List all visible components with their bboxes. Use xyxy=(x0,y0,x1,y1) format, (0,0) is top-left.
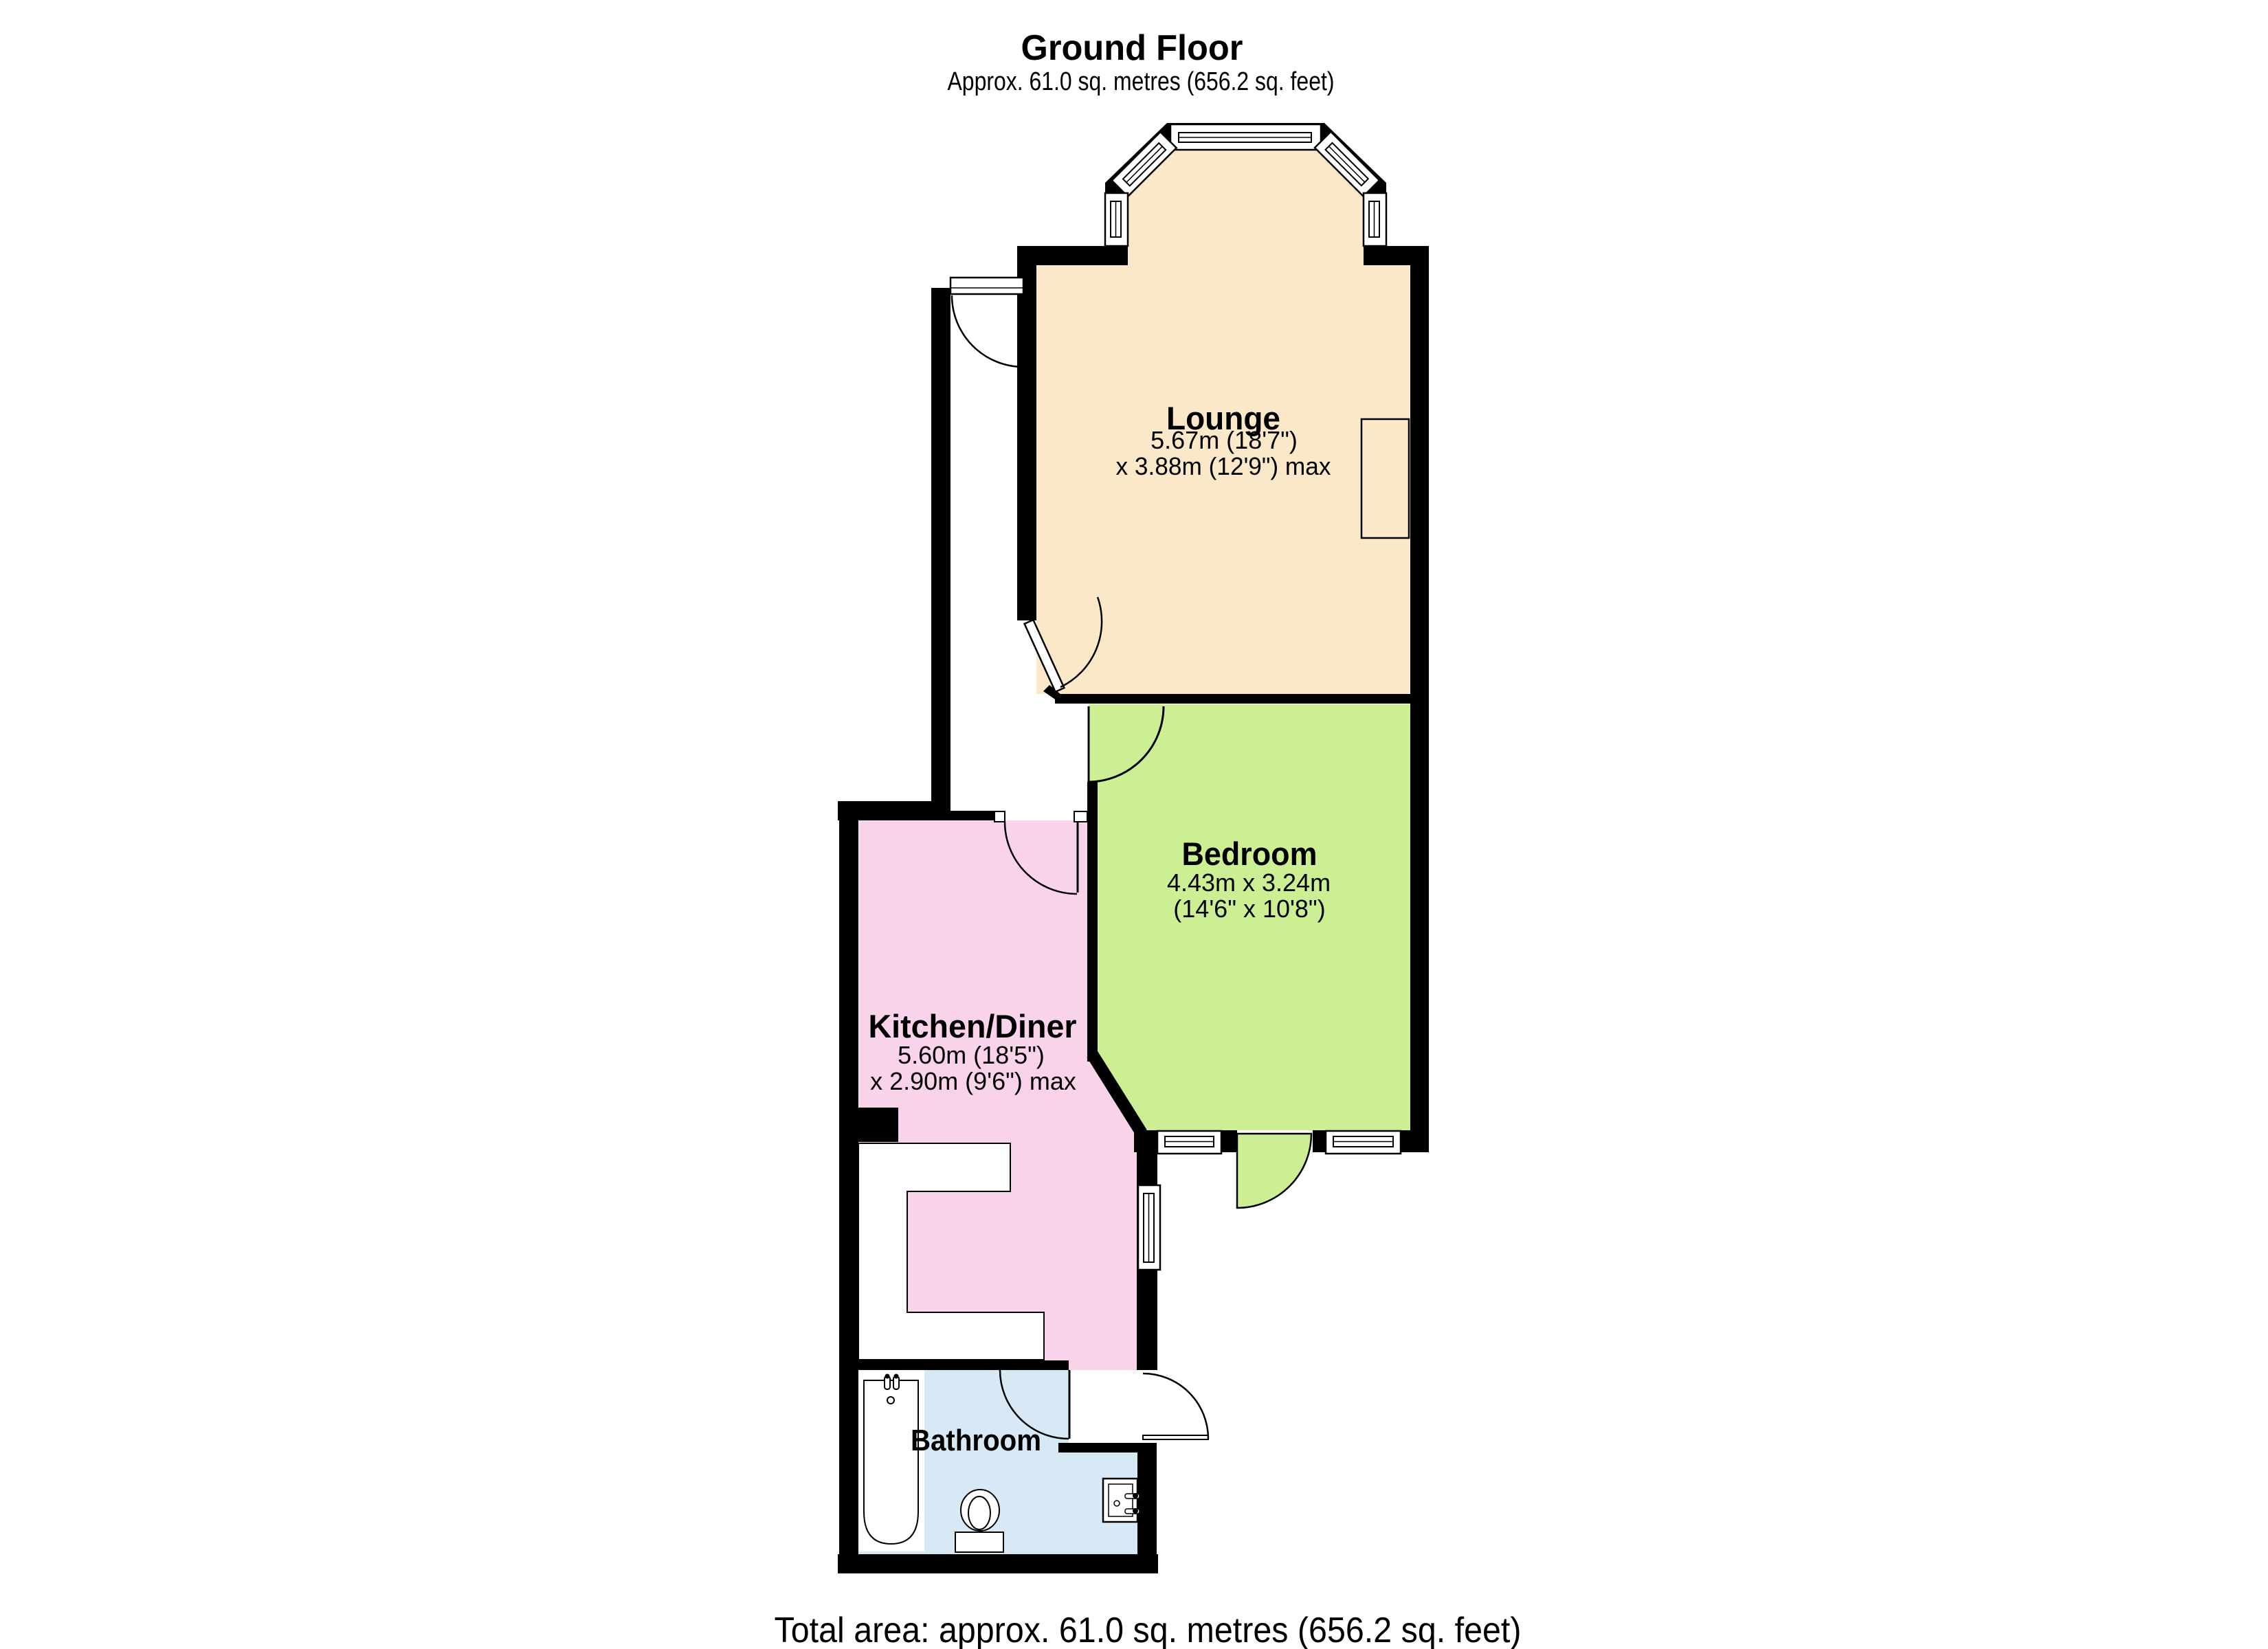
svg-text:x 3.88m (12'9") max: x 3.88m (12'9") max xyxy=(1116,452,1331,480)
svg-text:(14'6" x 10'8"): (14'6" x 10'8") xyxy=(1173,895,1325,923)
svg-text:Total area: approx. 61.0 sq. m: Total area: approx. 61.0 sq. metres (656… xyxy=(775,1611,1522,1649)
svg-text:5.60m (18'5"): 5.60m (18'5") xyxy=(898,1041,1045,1069)
svg-text:5.67m (18'7"): 5.67m (18'7") xyxy=(1150,426,1298,454)
svg-text:Bedroom: Bedroom xyxy=(1182,835,1318,872)
svg-text:Kitchen/Diner: Kitchen/Diner xyxy=(869,1008,1077,1044)
svg-text:x 2.90m (9'6") max: x 2.90m (9'6") max xyxy=(870,1067,1076,1095)
svg-text:Approx. 61.0 sq. metres (656.2: Approx. 61.0 sq. metres (656.2 sq. feet) xyxy=(948,67,1335,96)
svg-text:Bathroom: Bathroom xyxy=(911,1424,1041,1457)
svg-text:4.43m x 3.24m: 4.43m x 3.24m xyxy=(1167,868,1331,897)
svg-text:Ground Floor: Ground Floor xyxy=(1021,28,1243,68)
